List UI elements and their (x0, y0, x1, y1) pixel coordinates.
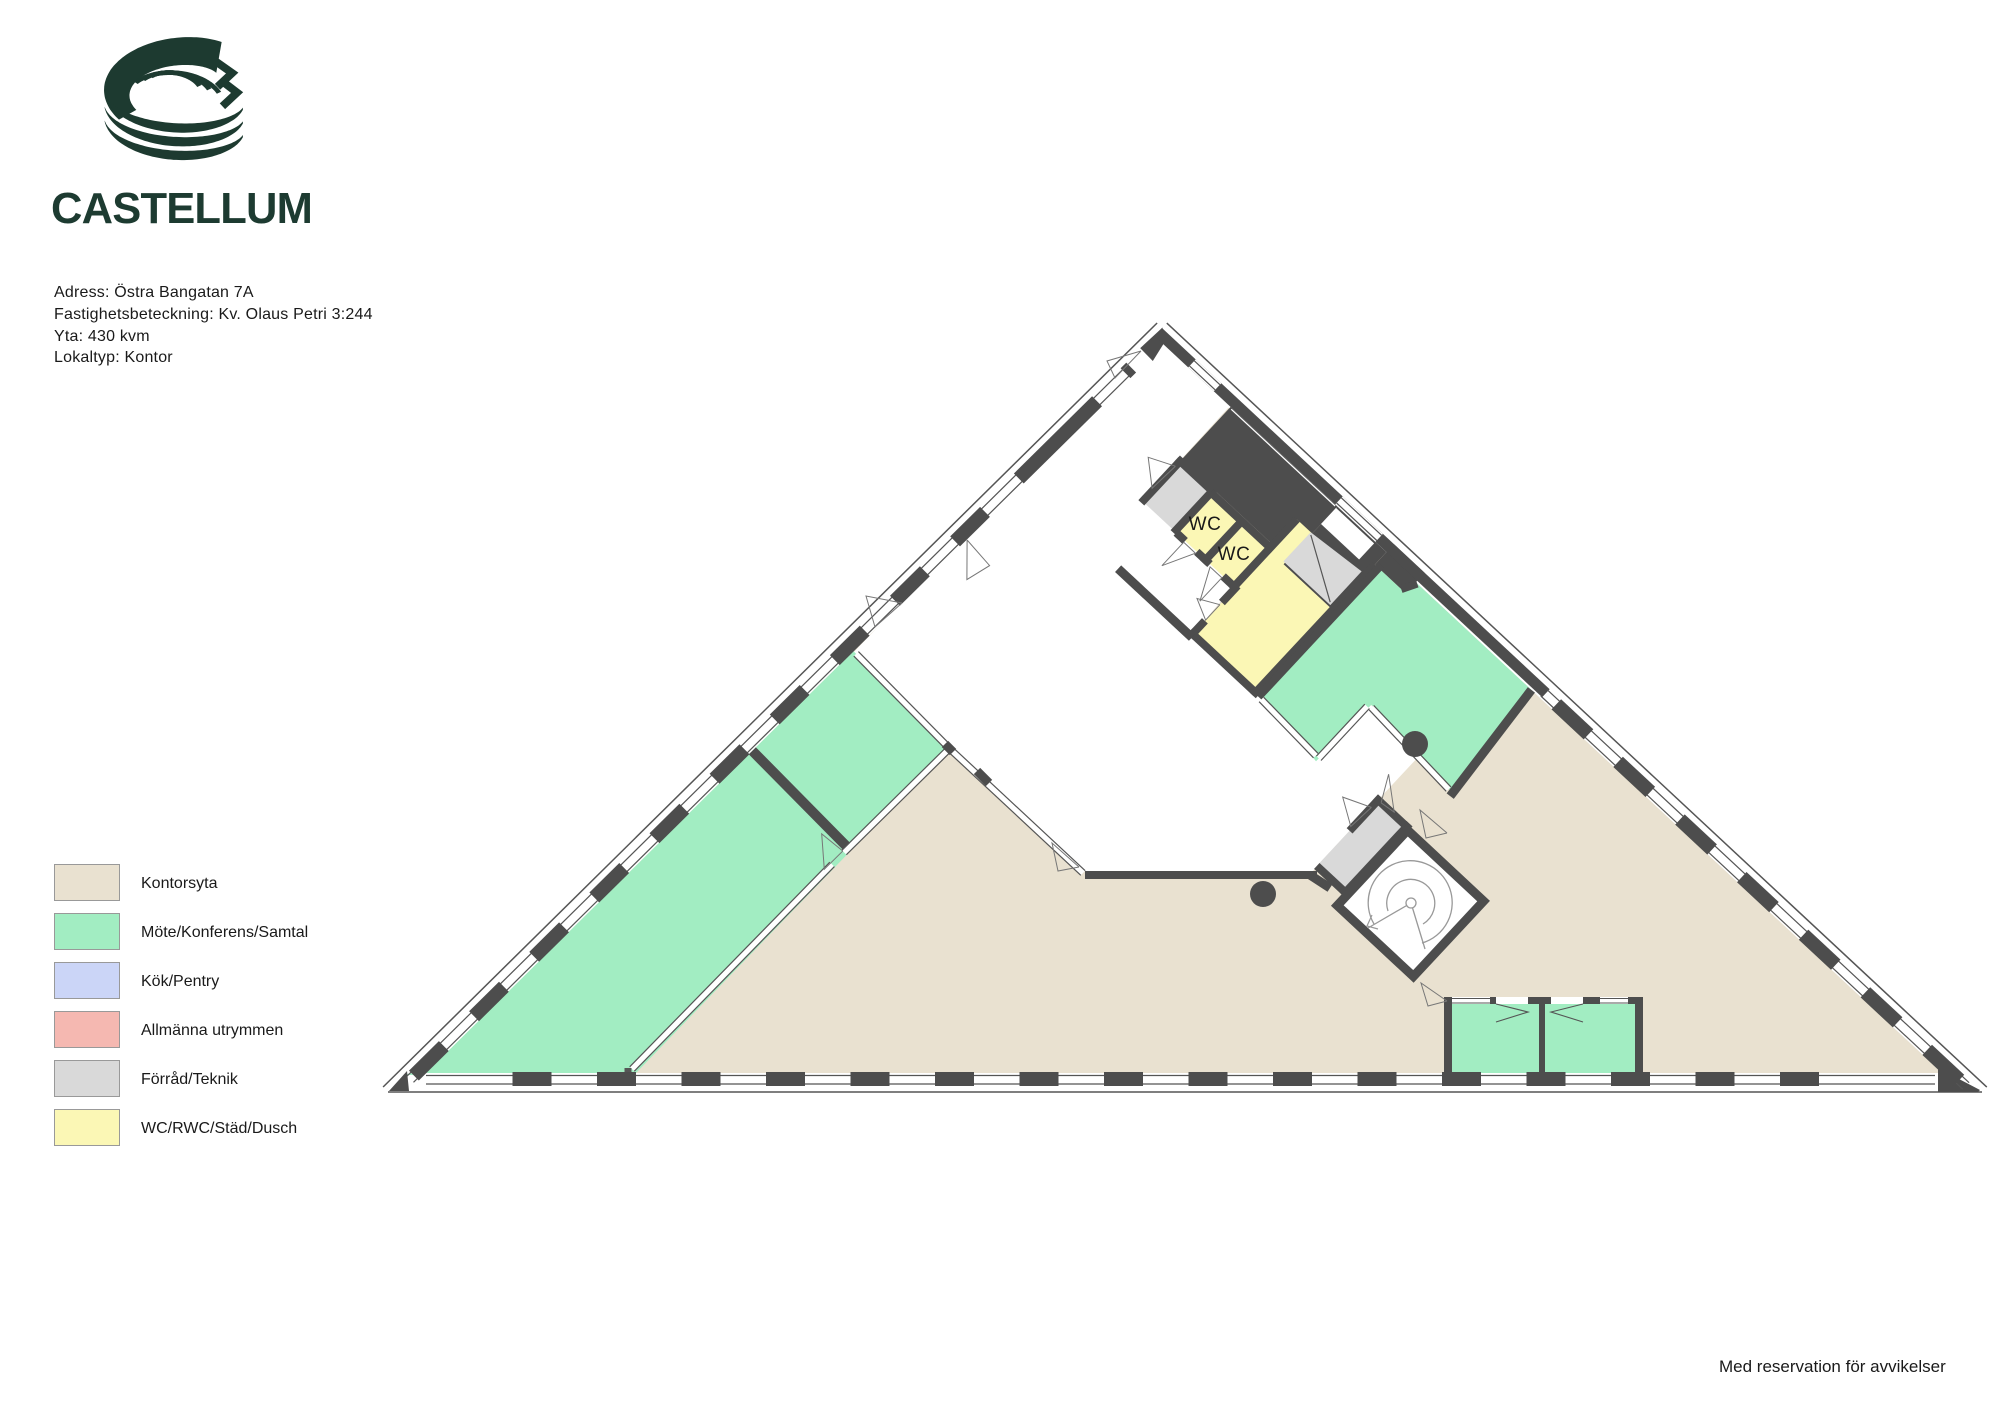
svg-text:WC: WC (1189, 514, 1222, 535)
svg-text:WC: WC (1218, 544, 1251, 565)
